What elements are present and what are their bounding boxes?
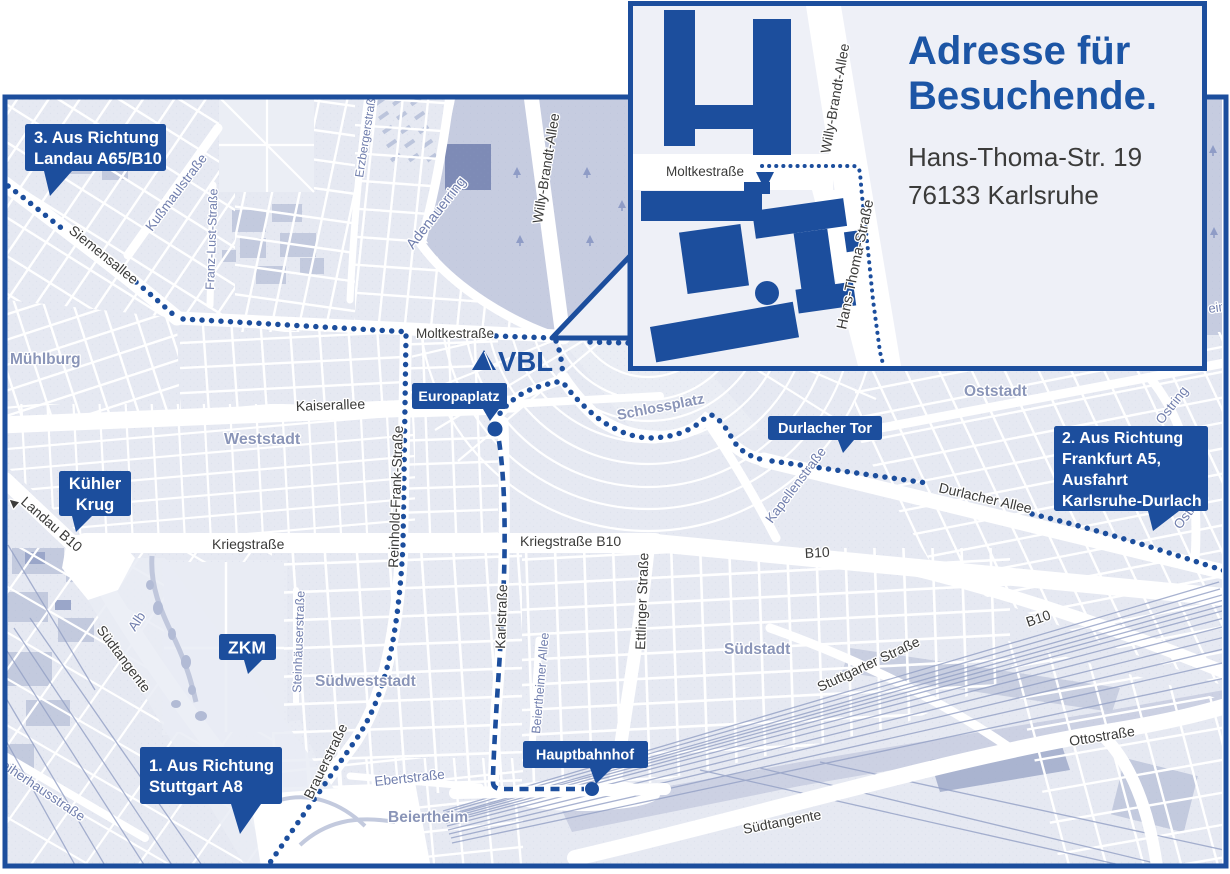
svg-text:Mühlburg: Mühlburg: [10, 351, 81, 368]
svg-text:1. Aus Richtung: 1. Aus Richtung: [149, 757, 274, 775]
svg-text:Moltkestraße: Moltkestraße: [416, 326, 494, 341]
svg-text:3. Aus Richtung: 3. Aus Richtung: [34, 129, 159, 147]
svg-text:Krug: Krug: [76, 496, 115, 514]
svg-text:2. Aus Richtung: 2. Aus Richtung: [1062, 430, 1183, 447]
svg-text:Karlsruhe-Durlach: Karlsruhe-Durlach: [1062, 493, 1202, 510]
svg-text:Adresse für: Adresse für: [908, 29, 1130, 73]
svg-text:Europaplatz: Europaplatz: [418, 389, 499, 405]
svg-text:Hauptbahnhof: Hauptbahnhof: [536, 748, 634, 764]
svg-text:Beiertheim: Beiertheim: [388, 809, 468, 826]
svg-text:Ausfahrt: Ausfahrt: [1062, 472, 1128, 489]
svg-text:Durlacher Tor: Durlacher Tor: [778, 421, 872, 437]
svg-text:Stuttgart A8: Stuttgart A8: [149, 778, 243, 796]
svg-text:Weststadt: Weststadt: [224, 431, 301, 448]
svg-text:Moltkestraße: Moltkestraße: [666, 164, 744, 179]
svg-text:Kriegstraße B10: Kriegstraße B10: [520, 533, 621, 549]
svg-text:Karlstraße: Karlstraße: [492, 584, 510, 649]
svg-text:Hans-Thoma-Str. 19: Hans-Thoma-Str. 19: [908, 142, 1142, 172]
svg-text:VBL: VBL: [498, 346, 553, 377]
svg-text:Südweststadt: Südweststadt: [315, 673, 416, 690]
svg-text:Kriegstraße: Kriegstraße: [212, 536, 285, 552]
svg-text:Ettlinger Straße: Ettlinger Straße: [632, 552, 651, 650]
svg-text:Kaiserallee: Kaiserallee: [296, 396, 366, 414]
svg-text:Oststadt: Oststadt: [964, 383, 1027, 400]
svg-text:76133 Karlsruhe: 76133 Karlsruhe: [908, 180, 1099, 210]
svg-text:ZKM: ZKM: [228, 637, 266, 657]
svg-text:Landau A65/B10: Landau A65/B10: [34, 150, 162, 168]
svg-text:Kühler: Kühler: [69, 475, 122, 493]
svg-text:Südstadt: Südstadt: [724, 641, 790, 658]
svg-text:B10: B10: [804, 544, 830, 561]
svg-text:Besuchende.: Besuchende.: [908, 74, 1157, 118]
svg-text:Frankfurt A5,: Frankfurt A5,: [1062, 451, 1161, 468]
